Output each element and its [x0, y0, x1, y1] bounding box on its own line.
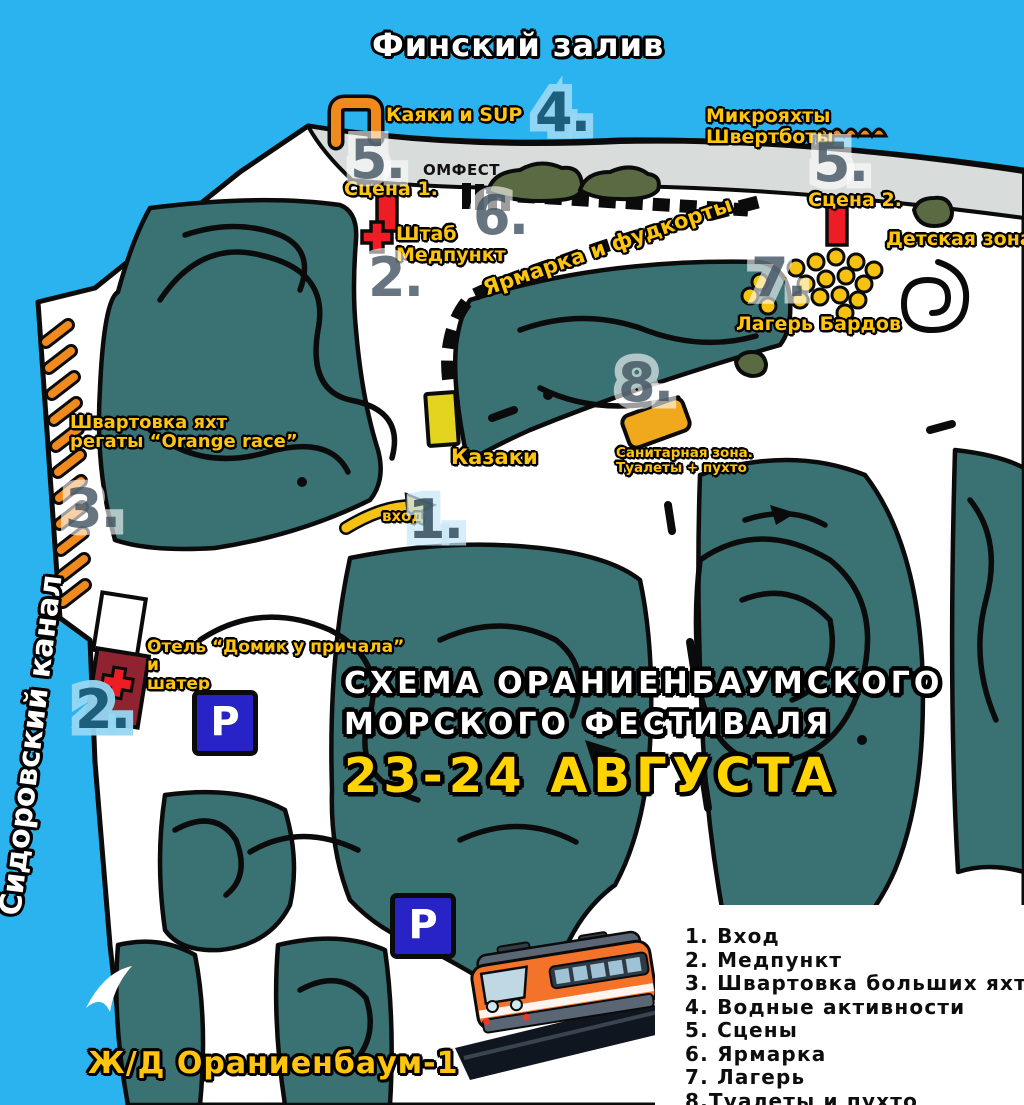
- badge-2-hotel: 2.2.: [75, 683, 129, 737]
- map-title: СХЕМА ОРАНИЕНБАУМСКОГО МОРСКОГО ФЕСТИВАЛ…: [344, 666, 943, 804]
- parking-sign-station: P: [390, 893, 456, 959]
- label-microyachts-line1: Микрояхты: [706, 106, 834, 127]
- badge-1-entrance: 1.1.: [408, 493, 462, 547]
- label-gulf: Финский залив: [372, 28, 664, 63]
- badge-2-medpoint: 2.2.: [368, 251, 422, 305]
- badge-3-mooring: 3.3.: [65, 482, 119, 536]
- legend-item-3: 3. Швартовка больших яхт: [685, 972, 1024, 996]
- park-southwest-a: [160, 792, 294, 950]
- legend-item-8: 8.Туалеты и пухто: [685, 1090, 1024, 1105]
- label-mooring: Швартовка яхт регаты “Orange race”: [70, 413, 298, 452]
- parking-sign-hotel: P: [192, 690, 258, 756]
- legend-item-5: 5. Сцены: [685, 1019, 1024, 1043]
- title-dates: 23-24 АВГУСТА: [344, 748, 943, 804]
- badge-6-fair: 6.6.: [473, 189, 527, 243]
- label-mooring-line2: регаты “Orange race”: [70, 432, 298, 451]
- label-bard-camp: Лагерь Бардов: [736, 314, 901, 335]
- label-railway-station: Ж/Д Ораниенбаум-1: [88, 1048, 458, 1080]
- label-sanitary-line2: Туалеты + пухто: [616, 461, 753, 476]
- badge-5-stage1: 5.5.: [350, 133, 404, 187]
- badge-4-water-activities: 4.4.: [535, 86, 589, 140]
- legend-item-6: 6. Ярмарка: [685, 1043, 1024, 1067]
- label-hotel-line1: Отель “Домик у причала”: [147, 638, 404, 656]
- legend-box: 1. Вход 2. Медпункт 3. Швартовка больших…: [655, 905, 1024, 1105]
- stage2-icon: [827, 207, 847, 245]
- legend-item-1: 1. Вход: [685, 925, 1024, 949]
- title-line2: МОРСКОГО ФЕСТИВАЛЯ: [344, 707, 943, 742]
- label-kayaks: Каяки и SUP: [386, 105, 522, 126]
- label-kids-zone: Детская зона: [886, 229, 1024, 250]
- legend-item-7: 7. Лагерь: [685, 1066, 1024, 1090]
- label-sanitary-zone: Санитарная зона. Туалеты + пухто: [616, 446, 753, 475]
- park-right-edge: [952, 450, 1024, 872]
- badge-5-stage2: 5.5.: [813, 136, 867, 190]
- cossacks-building: [425, 392, 459, 446]
- legend-list: 1. Вход 2. Медпункт 3. Швартовка больших…: [685, 925, 1024, 1105]
- legend-item-2: 2. Медпункт: [685, 949, 1024, 973]
- badge-8-toilets: 8.8.: [618, 356, 672, 410]
- legend-item-4: 4. Водные активности: [685, 996, 1024, 1020]
- title-line1: СХЕМА ОРАНИЕНБАУМСКОГО: [344, 666, 943, 701]
- label-sanitary-line1: Санитарная зона.: [616, 446, 753, 461]
- label-omfest: ОМФЕСТ: [423, 162, 500, 178]
- label-cossacks: Казаки: [451, 446, 538, 469]
- parking-letter: P: [210, 699, 239, 745]
- badge-7-camp: 7.7.: [751, 251, 805, 305]
- festival-map: Финский залив Сидоровский канал Каяки и …: [0, 0, 1024, 1105]
- parking-letter: P: [408, 902, 437, 948]
- label-mooring-line1: Швартовка яхт: [70, 413, 298, 432]
